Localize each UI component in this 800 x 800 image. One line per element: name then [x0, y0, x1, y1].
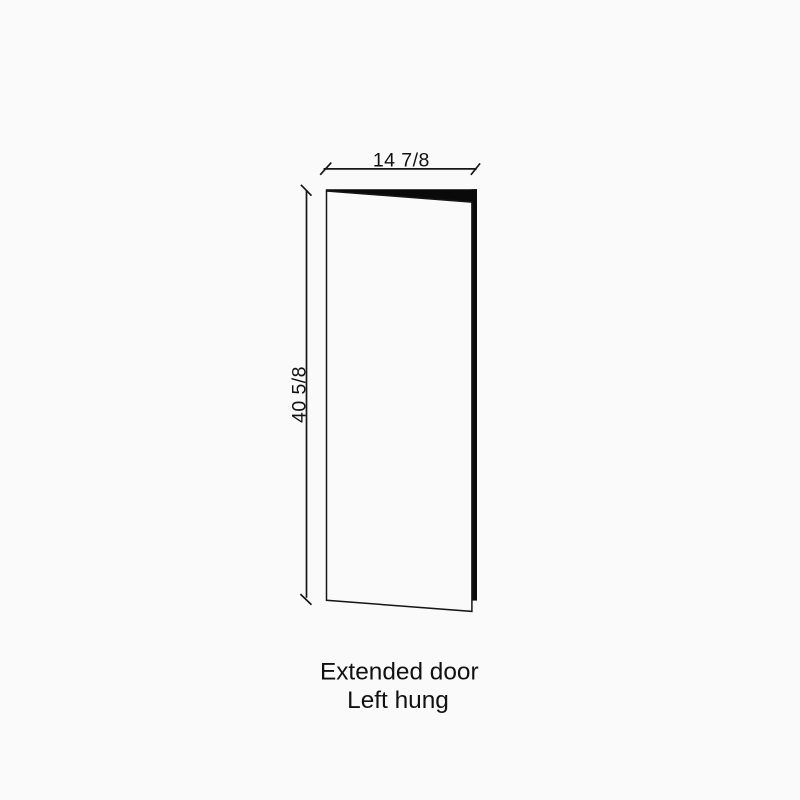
svg-text:14 7/8: 14 7/8: [373, 150, 430, 172]
svg-text:Extended door: Extended door: [320, 659, 479, 686]
svg-text:Left hung: Left hung: [347, 687, 449, 714]
svg-text:40 5/8: 40 5/8: [288, 366, 310, 423]
